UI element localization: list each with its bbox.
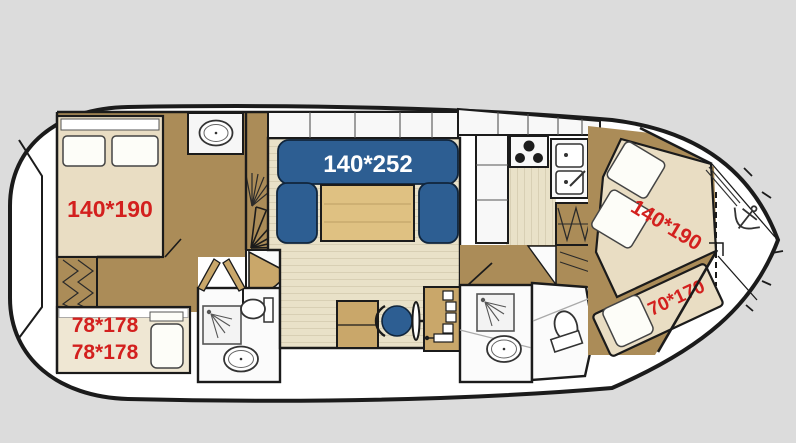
toilet-room: [532, 283, 594, 380]
bunk-upper-dimension-label: 78*178: [72, 314, 139, 337]
floor-plan-stage: 140*190: [0, 0, 796, 443]
sink-icon: [224, 347, 258, 372]
helm-chair-icon: [382, 306, 412, 336]
salon-cabinets: [268, 112, 458, 138]
bunk-lower-dimension-label: 78*178: [72, 341, 139, 364]
pillow-icon: [112, 136, 158, 166]
sofa-right-cushion: [419, 183, 458, 243]
wardrobe-icon: [57, 257, 97, 312]
stove-icon: [510, 136, 548, 167]
counter: [476, 135, 508, 243]
pillow-icon: [63, 136, 105, 166]
headboard: [61, 119, 159, 130]
steering-wheel-icon: [413, 302, 420, 340]
aft-bathroom: [198, 288, 280, 382]
shower-icon: [203, 306, 241, 344]
salon-sofa: 140*252: [277, 140, 458, 243]
aft-sink: [188, 113, 243, 154]
galley-floor: [506, 160, 556, 247]
sofa-left-cushion: [277, 183, 317, 243]
sink-icon: [487, 336, 521, 362]
boat-floor-plan: 140*190: [0, 0, 796, 443]
bunk-shelf: [150, 312, 183, 321]
aft-bed-dimension-label: 140*190: [67, 196, 153, 222]
salon: 140*252: [268, 112, 460, 351]
galley: [458, 109, 600, 287]
pillow-icon: [151, 324, 183, 368]
salon-table: [321, 185, 414, 241]
wardrobe-icon: [556, 203, 592, 245]
bunk-cabin: 78*178 78*178: [57, 307, 190, 373]
aft-cabin-bed: 140*190: [57, 116, 163, 257]
shower-icon: [477, 294, 514, 331]
double-sink-icon: [551, 139, 588, 198]
sofa-dimension-label: 140*252: [323, 151, 412, 178]
throttle-lever: [425, 336, 429, 340]
